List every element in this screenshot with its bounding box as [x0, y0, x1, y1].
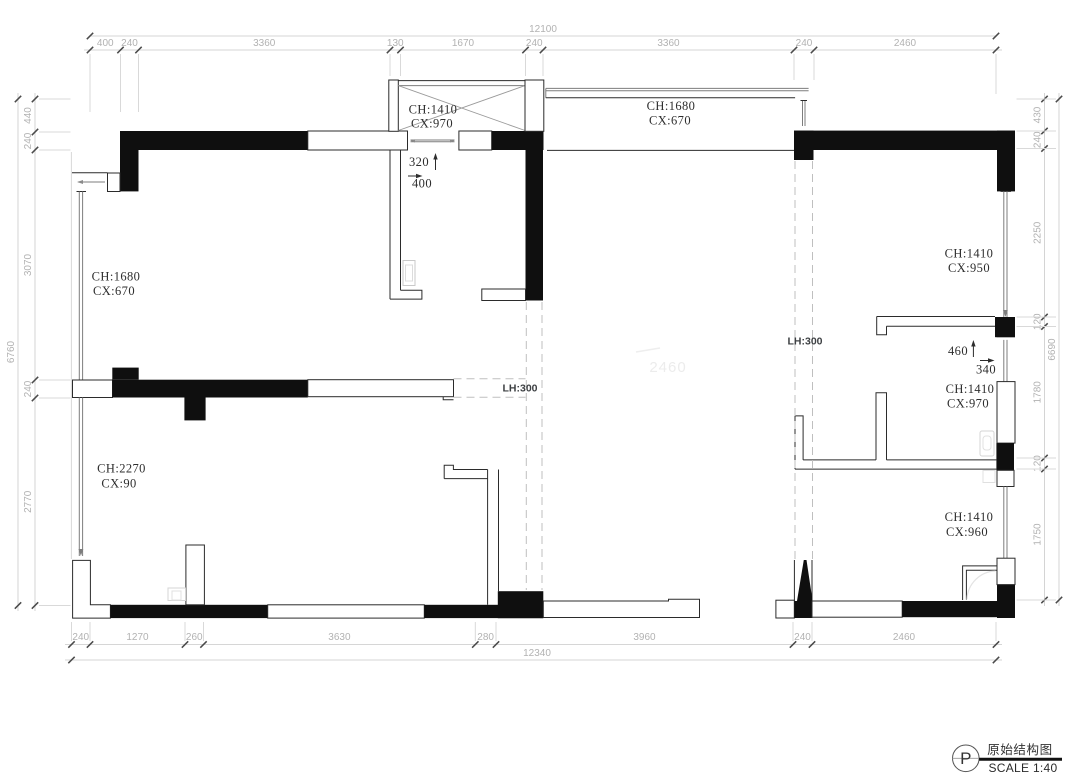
svg-text:3630: 3630: [328, 632, 351, 643]
svg-text:440: 440: [23, 107, 34, 124]
svg-text:CH:1680: CH:1680: [92, 270, 141, 284]
svg-text:1270: 1270: [126, 632, 149, 643]
svg-text:CH:1410: CH:1410: [945, 510, 994, 524]
svg-text:1780: 1780: [1033, 381, 1044, 404]
svg-text:CX:90: CX:90: [101, 477, 136, 491]
svg-text:2770: 2770: [23, 490, 34, 513]
svg-text:240: 240: [72, 632, 89, 643]
svg-text:CX:950: CX:950: [948, 261, 990, 275]
svg-text:CX:970: CX:970: [411, 117, 453, 131]
svg-text:3070: 3070: [23, 253, 34, 276]
svg-text:6690: 6690: [1047, 338, 1058, 361]
svg-text:240: 240: [121, 38, 138, 49]
svg-text:CH:1410: CH:1410: [945, 247, 994, 261]
svg-text:P: P: [960, 749, 971, 768]
svg-text:130: 130: [387, 38, 404, 49]
svg-text:3360: 3360: [657, 38, 680, 49]
svg-text:240: 240: [526, 38, 543, 49]
svg-text:1750: 1750: [1033, 523, 1044, 546]
svg-text:CX:670: CX:670: [93, 284, 135, 298]
svg-text:240: 240: [23, 380, 34, 397]
svg-text:12100: 12100: [529, 24, 557, 35]
svg-text:CX:670: CX:670: [649, 114, 691, 128]
svg-text:260: 260: [186, 632, 203, 643]
svg-text:240: 240: [1033, 131, 1044, 148]
svg-text:240: 240: [23, 132, 34, 149]
svg-text:320: 320: [409, 155, 429, 169]
svg-text:430: 430: [1033, 106, 1044, 123]
svg-text:CX:960: CX:960: [946, 525, 988, 539]
svg-text:400: 400: [412, 177, 432, 191]
svg-text:CH:1410: CH:1410: [409, 103, 458, 117]
svg-text:3360: 3360: [253, 38, 276, 49]
svg-text:3960: 3960: [633, 632, 656, 643]
svg-text:原始结构图: 原始结构图: [987, 742, 1053, 757]
svg-text:240: 240: [794, 632, 811, 643]
svg-text:2250: 2250: [1033, 221, 1044, 244]
svg-text:CH:2270: CH:2270: [97, 462, 146, 476]
svg-text:460: 460: [948, 344, 968, 358]
svg-text:400: 400: [97, 38, 114, 49]
svg-text:CH:1410: CH:1410: [946, 382, 995, 396]
svg-text:280: 280: [477, 632, 494, 643]
svg-text:1670: 1670: [452, 38, 475, 49]
svg-text:340: 340: [976, 363, 996, 377]
svg-text:12340: 12340: [523, 648, 551, 659]
svg-text:CH:1680: CH:1680: [647, 99, 696, 113]
svg-text:240: 240: [796, 38, 813, 49]
svg-text:CX:970: CX:970: [947, 397, 989, 411]
svg-text:2460: 2460: [894, 38, 917, 49]
svg-text:SCALE 1:40: SCALE 1:40: [988, 761, 1057, 775]
svg-text:2460: 2460: [893, 632, 916, 643]
svg-text:LH:300: LH:300: [502, 383, 537, 395]
svg-text:2460: 2460: [649, 359, 686, 376]
svg-text:LH:300: LH:300: [787, 336, 822, 348]
svg-text:120: 120: [1033, 313, 1044, 330]
svg-text:6760: 6760: [6, 340, 17, 363]
